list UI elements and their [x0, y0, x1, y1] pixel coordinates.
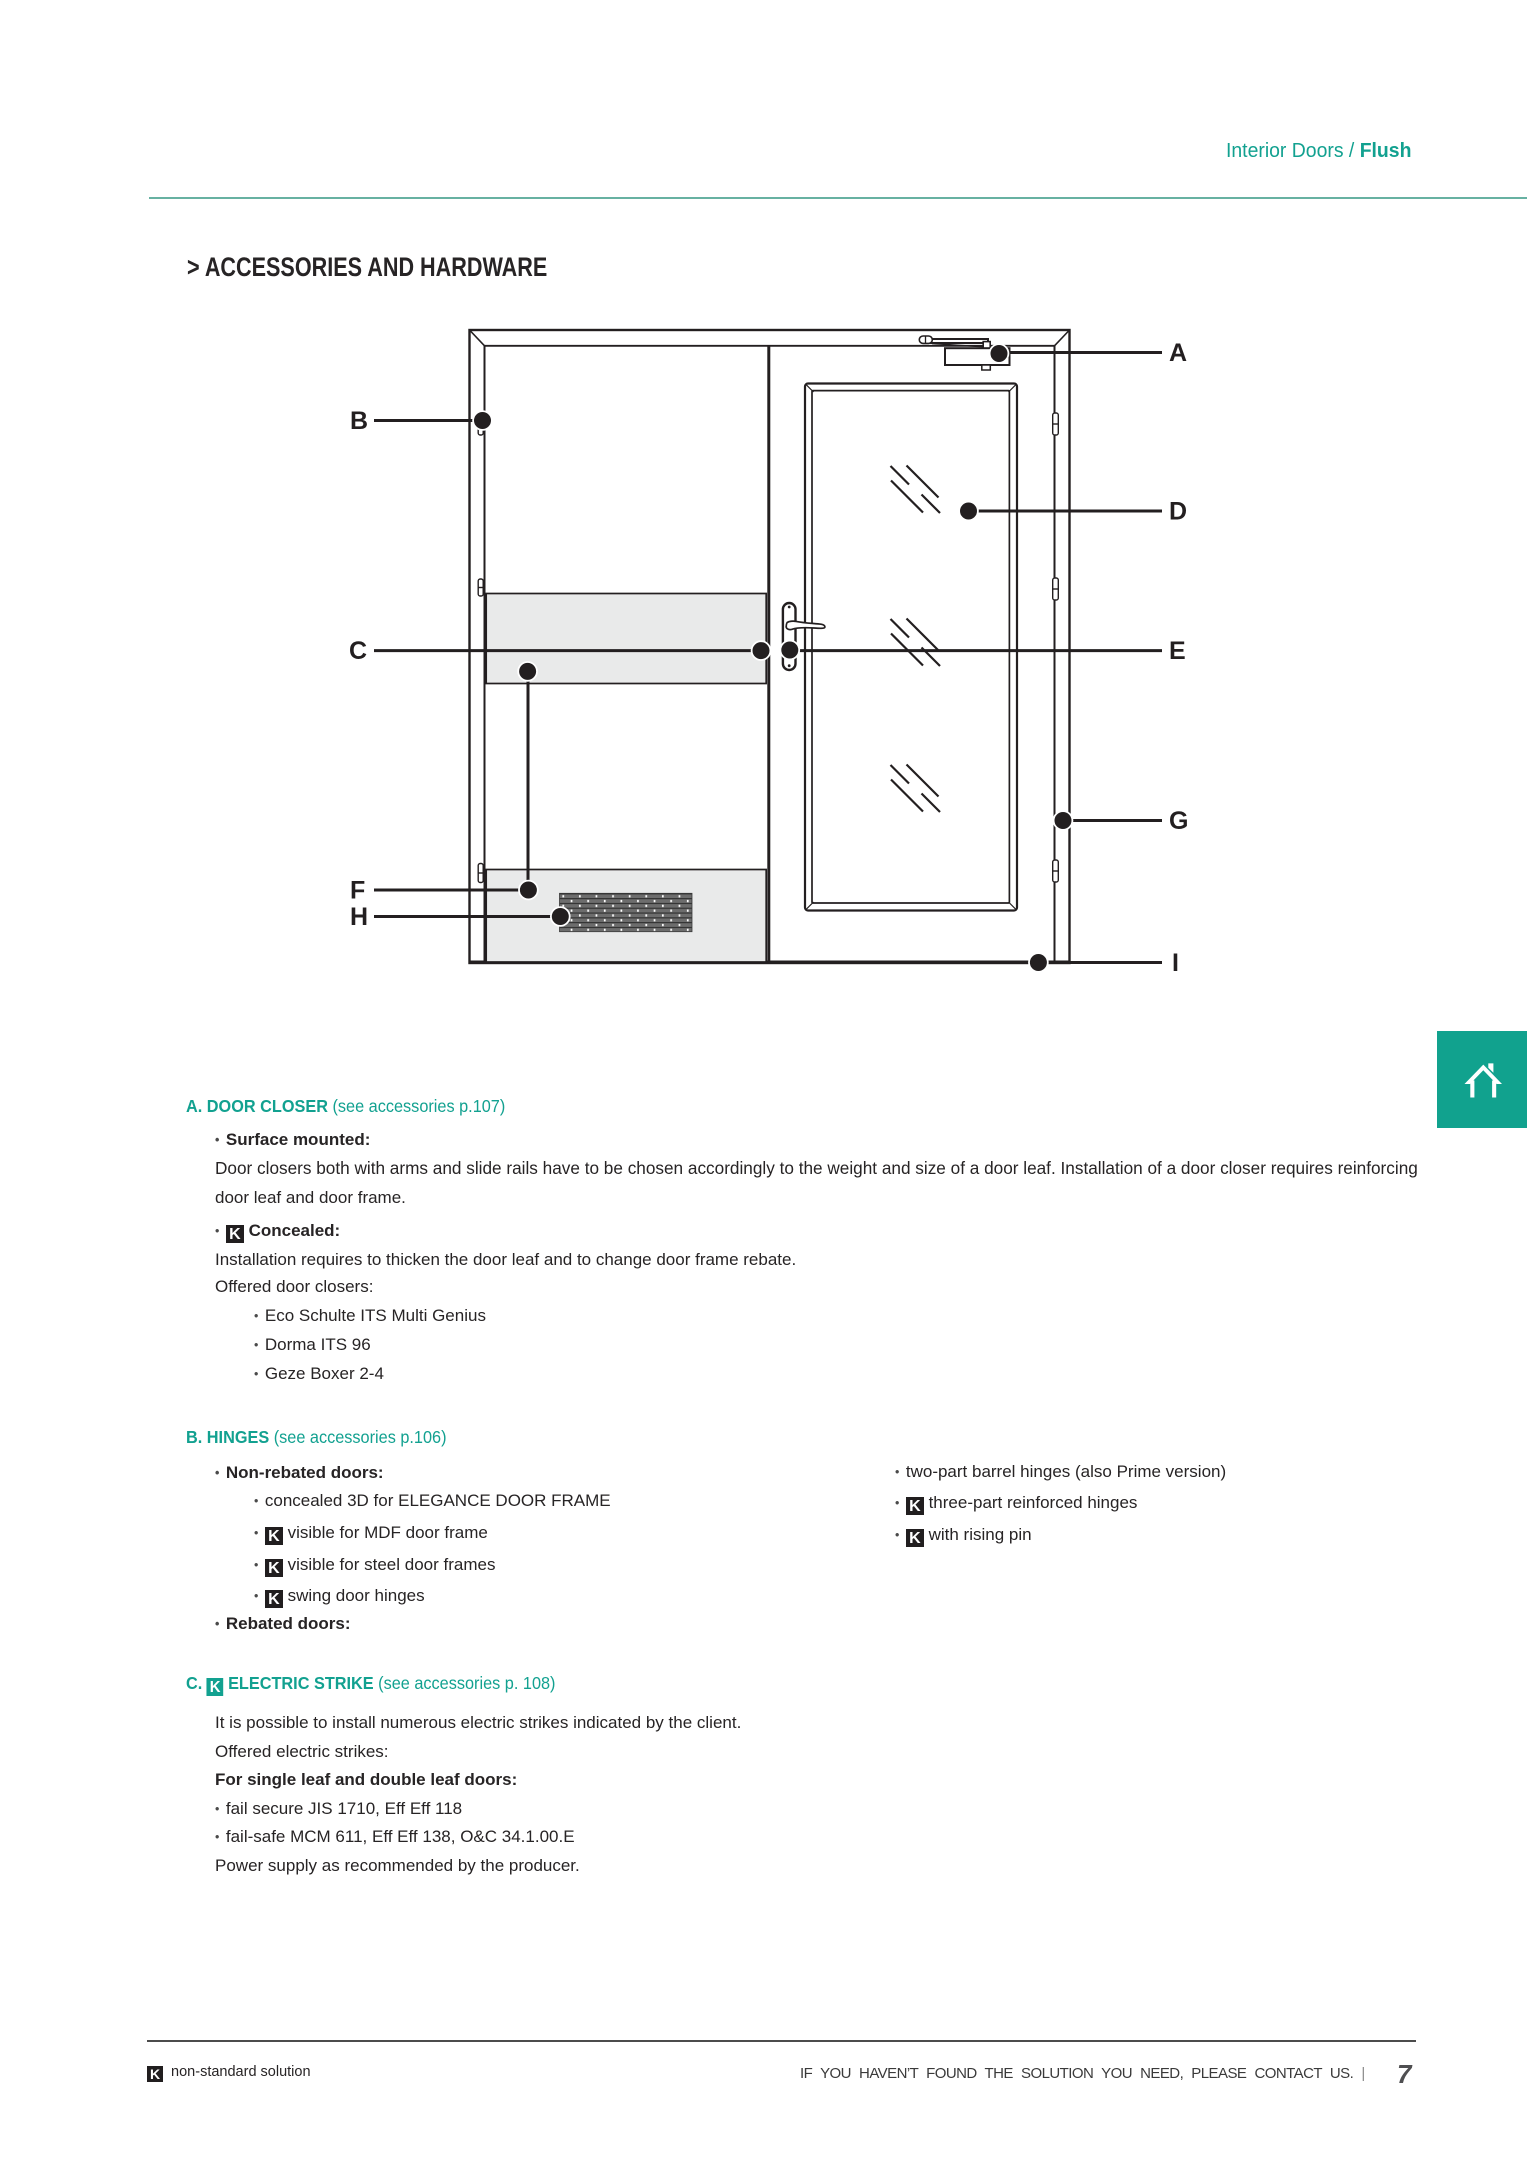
- svg-text:F: F: [350, 877, 365, 905]
- svg-text:I: I: [1172, 949, 1179, 977]
- svg-text:H: H: [350, 903, 368, 931]
- svg-text:A: A: [1169, 339, 1187, 367]
- svg-text:D: D: [1169, 498, 1187, 526]
- svg-text:C: C: [349, 637, 367, 665]
- svg-text:G: G: [1169, 807, 1188, 835]
- svg-text:E: E: [1169, 637, 1186, 665]
- svg-text:B: B: [350, 407, 368, 435]
